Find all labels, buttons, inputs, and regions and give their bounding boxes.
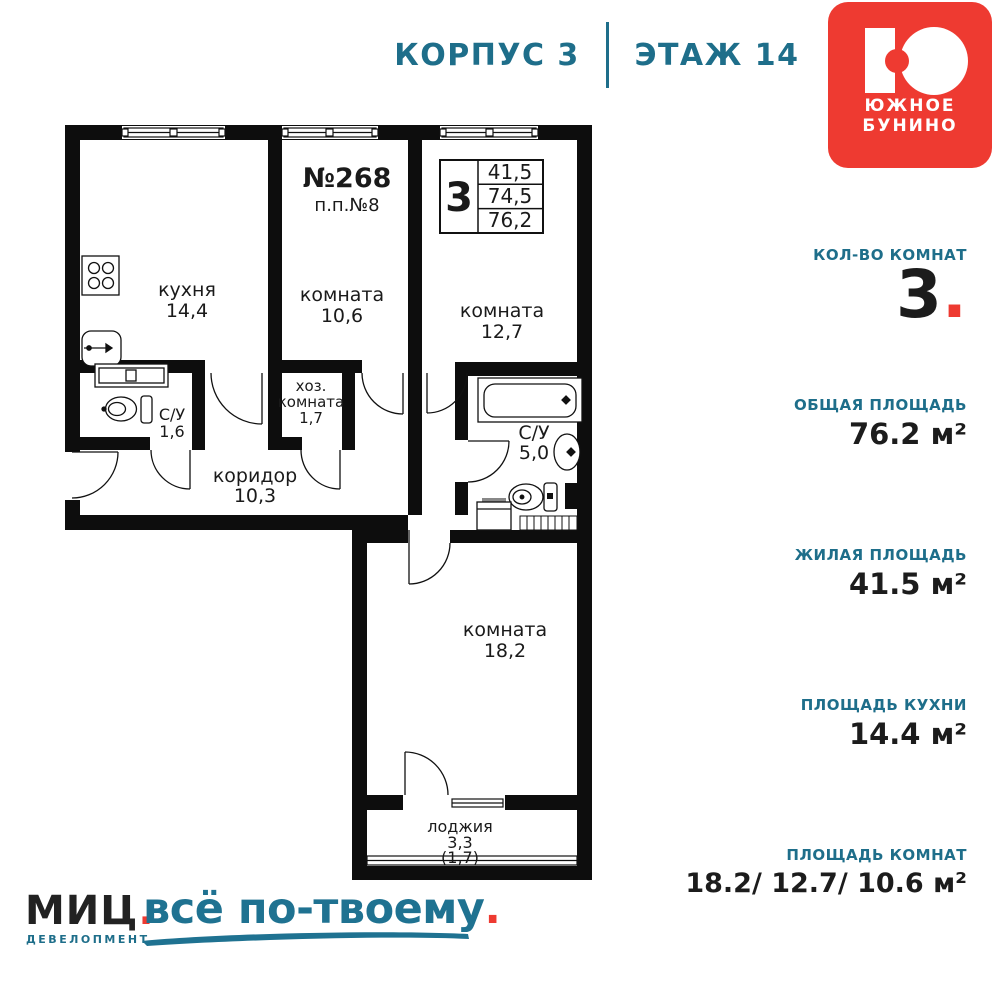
utility-area: 1,7: [299, 409, 323, 427]
rooms-count-value: 3.: [896, 262, 967, 328]
door-arc: [362, 373, 403, 414]
vent-hatch: [520, 516, 577, 530]
door-arc: [468, 441, 509, 482]
apartment-number: №268: [303, 163, 392, 194]
pp-number: п.п.№8: [314, 195, 379, 216]
toilet-icon: [509, 483, 557, 511]
door-arc: [151, 450, 190, 489]
wc-large-area: 5,0: [519, 442, 549, 464]
kitchen-area: 14,4: [166, 300, 208, 322]
developer-sub-label: ДЕВЕЛОПМЕНТ: [26, 933, 150, 946]
rooms-area-value: 18.2/ 12.7/ 10.6 м²: [685, 870, 967, 897]
toilet-icon: [102, 396, 152, 423]
bedroom2-label: комната: [460, 300, 544, 322]
kitchen-sink-icon: [82, 331, 121, 366]
bedroom1-label: комната: [300, 284, 384, 306]
washbasin-icon: [554, 434, 580, 470]
slogan: всё по-твоему.: [143, 888, 500, 931]
kitchen-area-value: 14.4 м²: [849, 720, 967, 749]
door-arc: [211, 373, 262, 424]
total-area-value: 76.2 м²: [849, 420, 967, 449]
flat-card-page: { "header": {"building": "КОРПУС 3", "fl…: [0, 0, 1000, 1000]
total-area-label: ОБЩАЯ ПЛОЩАДЬ: [794, 396, 967, 414]
living-area-value: 41.5 м²: [849, 570, 967, 599]
corridor-area: 10,3: [234, 485, 276, 507]
wc-small-area: 1,6: [159, 422, 184, 441]
door-arc: [409, 530, 450, 584]
bedroom2-area: 12,7: [481, 321, 523, 343]
bedroom3-label: комната: [463, 619, 547, 641]
entrance-door-arc: [72, 452, 118, 498]
door-arc: [301, 450, 340, 489]
window: [282, 126, 378, 139]
info-box-total: 76,2: [488, 208, 533, 232]
info-box-rooms: 3: [445, 175, 473, 221]
rooms-area-label: ПЛОЩАДЬ КОМНАТ: [786, 846, 967, 864]
loggia-door-window: [450, 796, 505, 809]
washing-machine-icon: [95, 364, 168, 387]
bedroom1-area: 10,6: [321, 305, 363, 327]
bathtub-icon: [478, 378, 582, 422]
stove-icon: [82, 256, 119, 295]
kitchen-label: кухня: [158, 279, 216, 301]
info-box-reduced: 74,5: [488, 184, 533, 208]
living-area-label: ЖИЛАЯ ПЛОЩАДЬ: [795, 546, 967, 564]
wc-large-label: С/У: [518, 422, 550, 444]
slogan-underline-swoosh: [135, 928, 485, 952]
kitchen-area-label: ПЛОЩАДЬ КУХНИ: [801, 696, 967, 714]
slogan-dot: .: [484, 884, 500, 934]
loggia-area-coef: (1,7): [441, 848, 479, 867]
developer-logo: МИЦ.: [25, 891, 155, 931]
washing-machine-icon: [477, 498, 511, 530]
bedroom3-area: 18,2: [484, 640, 526, 662]
rooms-count-dot: .: [942, 256, 967, 333]
window: [122, 126, 225, 139]
info-box-living: 41,5: [488, 160, 533, 184]
window: [440, 126, 538, 139]
doors: [72, 373, 509, 795]
corridor-label: коридор: [213, 465, 297, 487]
loggia-door-arc: [405, 752, 448, 795]
